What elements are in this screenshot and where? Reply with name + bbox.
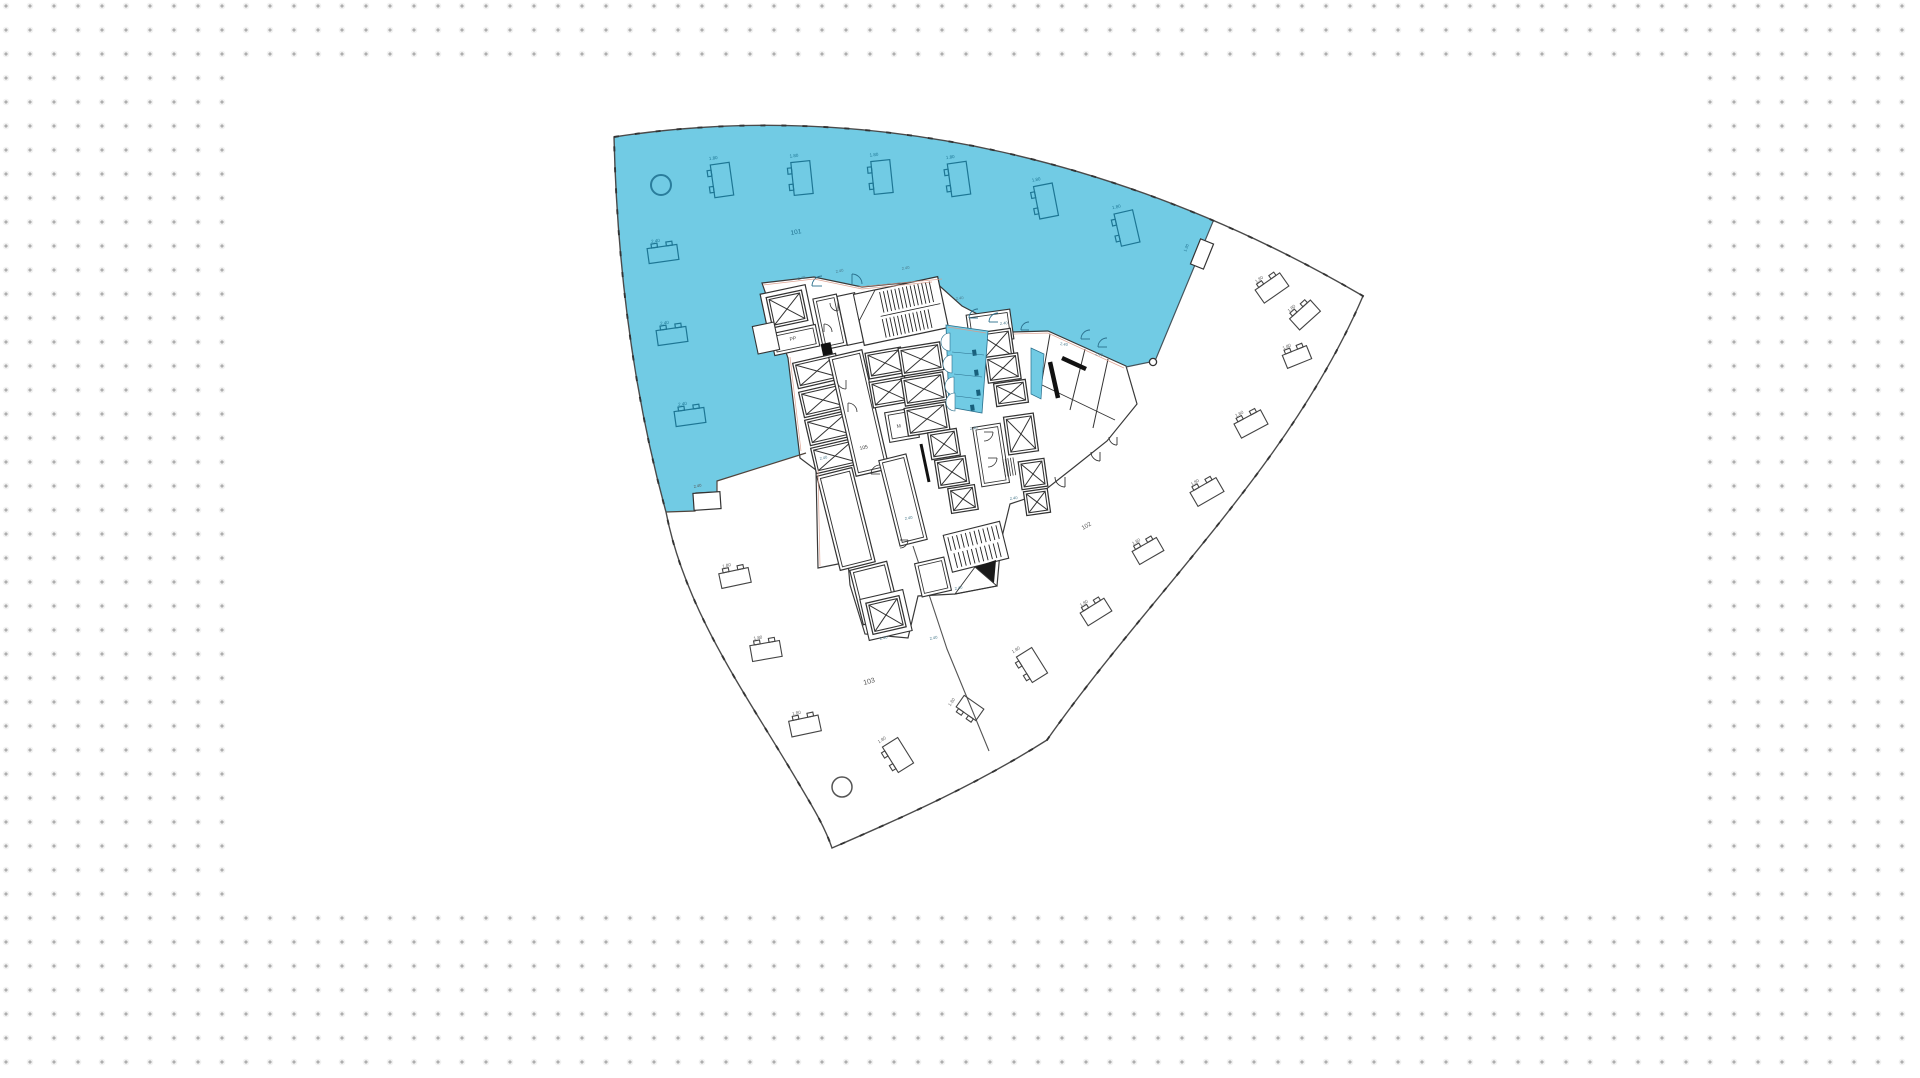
svg-text:2.40: 2.40 (1000, 320, 1009, 326)
svg-text:1.80: 1.80 (869, 152, 879, 158)
svg-text:1.80: 1.80 (789, 153, 799, 159)
